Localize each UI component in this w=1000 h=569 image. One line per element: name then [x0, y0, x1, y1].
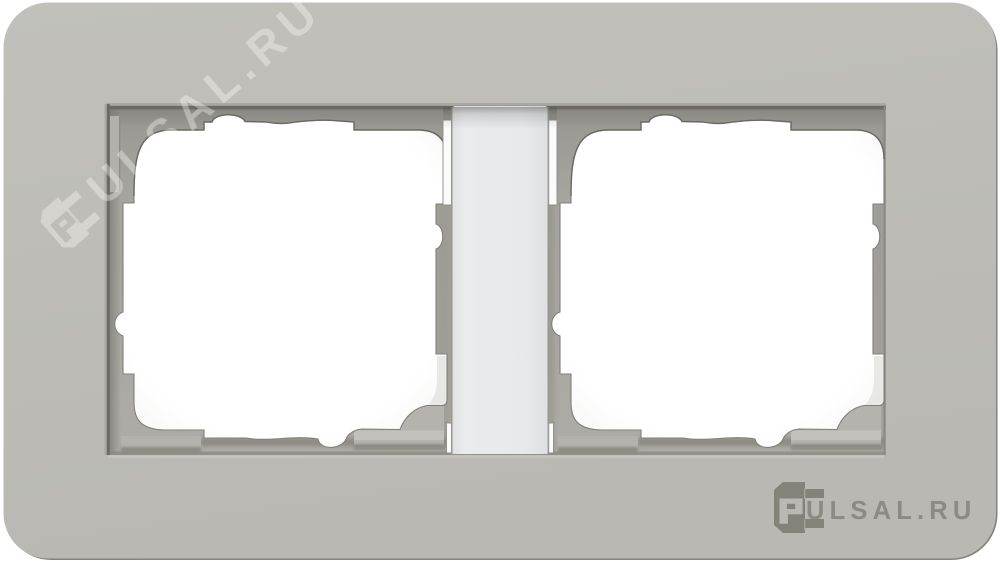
svg-text:ULSAL.RU: ULSAL.RU	[806, 497, 977, 525]
